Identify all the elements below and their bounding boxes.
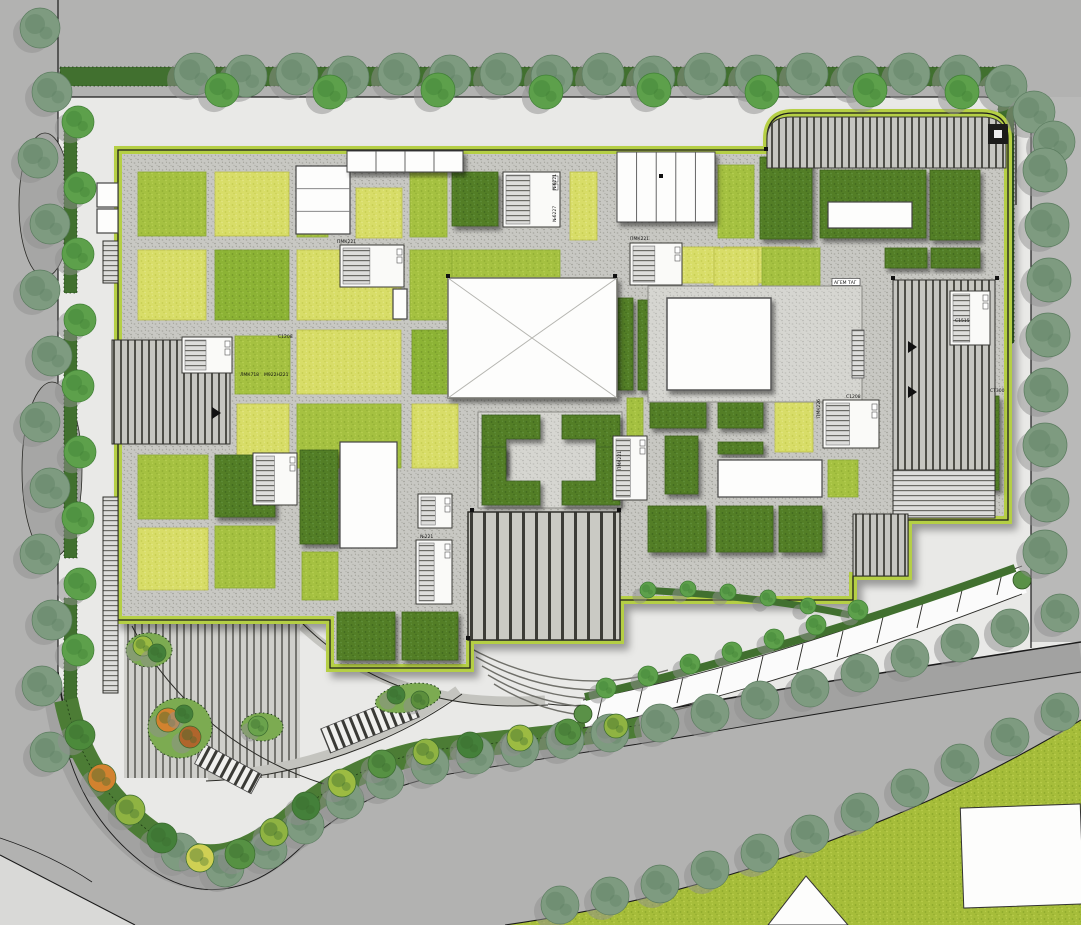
tree-crown-texture [1047, 498, 1061, 512]
corner-marker [446, 274, 450, 278]
annotation: М922Н221 [264, 372, 289, 378]
green-roof-panel [302, 552, 338, 600]
annotation-label: С1515 [955, 318, 970, 324]
green-roof-panel [138, 528, 208, 590]
green-roof-panel [138, 250, 206, 320]
annotation-label: М922Н221 [264, 372, 289, 378]
elevator-box [983, 295, 988, 301]
green-roof-panel [714, 248, 758, 288]
annotation: ПМК221 [630, 236, 649, 242]
tree-crown-texture [1010, 627, 1022, 639]
amphitheater-steps [468, 512, 620, 640]
green-roof-panel [718, 442, 763, 454]
tree-crown-texture [297, 73, 310, 86]
tree-crown-texture [1047, 223, 1061, 237]
tree-crown-texture [909, 73, 922, 86]
skylight-roof [718, 460, 822, 497]
tree-crown-texture [438, 89, 449, 100]
green-roof-panel [648, 506, 706, 552]
elevator-box [872, 412, 877, 418]
tree-crown-texture [1045, 168, 1059, 182]
corner-marker [764, 147, 768, 151]
annotation: СТ300 [990, 388, 1005, 394]
tree-crown-texture [40, 27, 53, 40]
tree-crown-texture [860, 672, 872, 684]
elevator-box [872, 404, 877, 410]
annotation-label: ПМК221 [617, 451, 623, 470]
green-roof-panel [337, 612, 395, 660]
elevator-box [445, 498, 450, 504]
tree-crown-texture [660, 722, 672, 734]
stairwell-stairs [343, 248, 370, 284]
corner-marker [891, 276, 895, 280]
tree-crown-texture [774, 638, 780, 644]
green-roof-panel [775, 398, 813, 452]
tree-crown-texture [52, 91, 65, 104]
wood-deck [853, 514, 908, 576]
wood-deck [893, 470, 995, 518]
green-roof-panel [718, 165, 754, 238]
stairwell-stairs [953, 294, 970, 342]
tree-crown-texture [616, 725, 624, 733]
green-roof-panel [665, 436, 698, 494]
elevator-box [290, 465, 295, 471]
tree-crown-texture [80, 583, 90, 593]
tree-crown-texture [710, 712, 722, 724]
corner-marker [470, 508, 474, 512]
annotation: ЛМК718 [240, 372, 259, 378]
tree-crown-texture [660, 883, 672, 895]
annotation-label: СТ300 [990, 388, 1005, 394]
elevator-box [445, 544, 450, 550]
annotation: С1208 [278, 334, 293, 340]
tree-crown-texture [80, 451, 90, 461]
tree-crown-texture [648, 675, 654, 681]
elevator-box [675, 255, 680, 261]
annotation: ПМК221 [617, 451, 623, 470]
building-pad [960, 804, 1081, 908]
annotation-label: ПМК226 [816, 399, 822, 418]
elevator-box [983, 303, 988, 309]
tree-crown-texture [705, 73, 718, 86]
wood-deck [103, 497, 118, 693]
skylight-roof [296, 166, 350, 234]
tree-crown-texture [654, 89, 665, 100]
green-roof-panel [779, 506, 822, 552]
tree-crown-texture [78, 649, 88, 659]
tree-crown-texture [78, 121, 88, 131]
stairwell-stairs [421, 497, 435, 525]
tree-crown-texture [130, 809, 140, 819]
elevator-box [675, 247, 680, 253]
tree-crown-texture [1046, 388, 1060, 402]
tree-crown-texture [190, 736, 197, 743]
tree-crown-texture [1060, 612, 1072, 624]
tree-crown-texture [342, 782, 351, 791]
tree-crown-texture [50, 223, 63, 236]
tree-crown-texture [240, 853, 250, 863]
tree-crown-texture [910, 657, 922, 669]
elevator-box [397, 249, 402, 255]
corner-marker [659, 174, 663, 178]
annotation: С1515 [955, 318, 970, 324]
roof-deck [767, 117, 1006, 168]
tree-crown-texture [78, 253, 88, 263]
annotation-label: №6227 [552, 206, 558, 222]
tree-crown-texture [222, 89, 233, 100]
tree-crown-texture [184, 713, 190, 719]
plaza-stair [852, 330, 864, 378]
annotation: №6227 [552, 206, 558, 222]
stairwell-stairs [185, 340, 206, 370]
green-roof-panel [235, 336, 290, 394]
green-roof-panel [618, 298, 633, 390]
tree-crown-texture [258, 725, 264, 731]
annotation-label: ПМК221 [337, 239, 356, 245]
tree-crown-texture [560, 904, 572, 916]
tree-crown-texture [910, 787, 922, 799]
tree-crown-texture [960, 762, 972, 774]
elevator-box [225, 349, 230, 355]
annotation-label: АГЕМ ТАГ [834, 280, 857, 286]
tree-crown-texture [162, 837, 172, 847]
corner-marker [466, 636, 470, 640]
tree-crown-texture [40, 289, 53, 302]
tree-crown-texture [40, 421, 53, 434]
pavilion-roof [667, 298, 771, 390]
green-roof-panel [410, 172, 447, 237]
green-roof-panel [215, 526, 275, 588]
tree-crown-texture [348, 76, 361, 89]
skylight-roof [828, 202, 912, 228]
tree-crown-texture [78, 517, 88, 527]
tree-crown-texture [382, 763, 391, 772]
tree-crown-texture [860, 811, 872, 823]
tree-crown-texture [102, 777, 111, 786]
green-roof-panel [931, 248, 980, 268]
green-roof-panel [570, 172, 597, 240]
annotation-label: №6221 [552, 174, 558, 190]
tree-crown-texture [420, 699, 426, 705]
tree-crown-texture [50, 487, 63, 500]
green-roof-panel [215, 172, 289, 236]
tree-crown-texture [1045, 550, 1059, 564]
wood-deck [103, 241, 118, 283]
tree-crown-texture [1060, 711, 1072, 723]
annotation: АГЕМ ТАГ [832, 279, 860, 287]
tree-crown-texture [306, 805, 315, 814]
tree-crown-texture [610, 895, 622, 907]
annotation-label: ЛМК718 [240, 372, 259, 378]
green-roof-panel [138, 455, 208, 519]
tree-crown-texture [808, 605, 813, 610]
elevator-box [225, 341, 230, 347]
tree-crown-texture [399, 73, 412, 86]
tree-crown-texture [710, 869, 722, 881]
tree-crown-texture [246, 75, 259, 88]
stairwell-stairs [256, 456, 274, 502]
annotation: ПМК221 [337, 239, 356, 245]
annotation: №6221 [552, 174, 558, 190]
elevator-box [445, 506, 450, 512]
tree-crown-texture [426, 751, 434, 759]
tree-crown-texture [816, 624, 822, 630]
tree-crown-texture [728, 591, 733, 596]
tree-crown-texture [52, 619, 65, 632]
green-roof-panel [762, 248, 820, 288]
tree-crown-texture [1045, 443, 1059, 457]
tree-crown-texture [200, 857, 209, 866]
tree-crown-texture [1049, 278, 1063, 292]
tree-crown-texture [732, 651, 738, 657]
tree-crown-texture [345, 799, 357, 811]
green-roof-panel [402, 612, 458, 660]
tree-crown-texture [648, 589, 653, 594]
green-roof-panel [828, 460, 858, 497]
tree-crown-texture [520, 737, 528, 745]
green-roof-panel [412, 404, 458, 468]
tree-crown-texture [768, 597, 773, 602]
annotation-label: ПМК221 [630, 236, 649, 242]
mechanical-unit [617, 152, 715, 222]
tree-crown-texture [385, 779, 397, 791]
green-roof-panel [930, 170, 980, 240]
tree-crown-texture [760, 699, 772, 711]
green-roof-panel [297, 330, 401, 394]
green-roof-panel [215, 250, 289, 320]
tree-crown-texture [396, 694, 402, 700]
stairwell-stairs [633, 246, 655, 282]
tree-crown-texture [470, 744, 478, 752]
tree-crown-texture [52, 355, 65, 368]
elevator-box [445, 552, 450, 558]
tree-crown-texture [690, 663, 696, 669]
skylight-roof [340, 442, 397, 548]
tree-crown-texture [762, 91, 773, 102]
tree-crown-texture [1034, 111, 1047, 124]
tree-crown-texture [810, 687, 822, 699]
annotation: С1208 [846, 394, 861, 400]
tree-crown-texture [80, 734, 90, 744]
elevator-box [290, 457, 295, 463]
skylight-roof [393, 289, 407, 319]
tree-crown-texture [38, 157, 51, 170]
green-roof-panel [452, 172, 498, 226]
skylight-roof [97, 183, 118, 207]
tree-crown-texture [960, 642, 972, 654]
tree-crown-texture [157, 652, 163, 658]
tree-crown-texture [858, 609, 864, 615]
tree-crown-texture [330, 91, 341, 102]
site-plan-drawing: ПМК221ПМК221№6221№6227ЛМК718М922Н221С120… [0, 0, 1081, 925]
tree-crown-texture [305, 824, 317, 836]
green-roof-panel [885, 248, 927, 268]
green-roof-panel [716, 506, 773, 552]
corner-marker [617, 508, 621, 512]
skylight-roof [97, 209, 118, 233]
tree-crown-texture [50, 751, 63, 764]
tree-crown-texture [1048, 333, 1062, 347]
annotation-label: С1208 [278, 334, 293, 340]
tree-crown-texture [603, 73, 616, 86]
green-roof-panel [138, 172, 206, 236]
tree-crown-texture [688, 588, 693, 593]
tree-crown-texture [430, 764, 442, 776]
elevator-box [397, 257, 402, 263]
elevator-box [640, 448, 645, 454]
tree-crown-texture [42, 685, 55, 698]
tree-crown-texture [962, 91, 973, 102]
tree-crown-texture [78, 385, 88, 395]
annotation-label: №221 [420, 534, 433, 540]
stairwell-stairs [506, 175, 530, 224]
tree-crown-texture [546, 91, 557, 102]
elevator-box [640, 440, 645, 446]
tree-crown-texture [1006, 85, 1019, 98]
tree-crown-texture [1010, 736, 1022, 748]
annotation: ПМК226 [816, 399, 822, 418]
site-plan: ПМК221ПМК221№6221№6227ЛМК718М922Н221С120… [0, 0, 1081, 925]
green-roof-panel [760, 157, 812, 239]
tree-crown-texture [501, 73, 514, 86]
annotation-label: С1208 [846, 394, 861, 400]
stairwell-stairs [826, 403, 850, 445]
tree-crown-texture [870, 89, 881, 100]
green-roof-panel [356, 188, 402, 238]
green-roof-panel [300, 450, 338, 544]
tree-crown-texture [606, 687, 612, 693]
annotation: №221 [420, 534, 433, 540]
tree-crown-texture [807, 73, 820, 86]
corner-marker [613, 274, 617, 278]
stairwell-stairs [419, 543, 434, 601]
deck-ornament-inner [994, 130, 1002, 138]
tree-crown-texture [80, 319, 90, 329]
tree-crown-texture [80, 187, 90, 197]
tree-crown-texture [274, 831, 283, 840]
tree-crown-texture [760, 852, 772, 864]
tree-crown-texture [568, 731, 576, 739]
parking-end-planter [574, 705, 592, 723]
corner-marker [995, 276, 999, 280]
tree-crown-texture [810, 833, 822, 845]
tree-crown-texture [40, 553, 53, 566]
